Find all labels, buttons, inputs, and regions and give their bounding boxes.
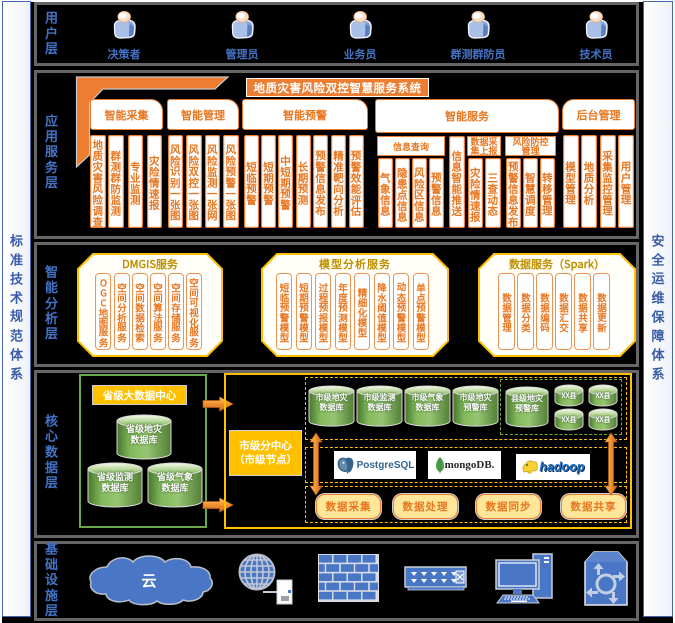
svg-text:云: 云 xyxy=(141,570,156,591)
